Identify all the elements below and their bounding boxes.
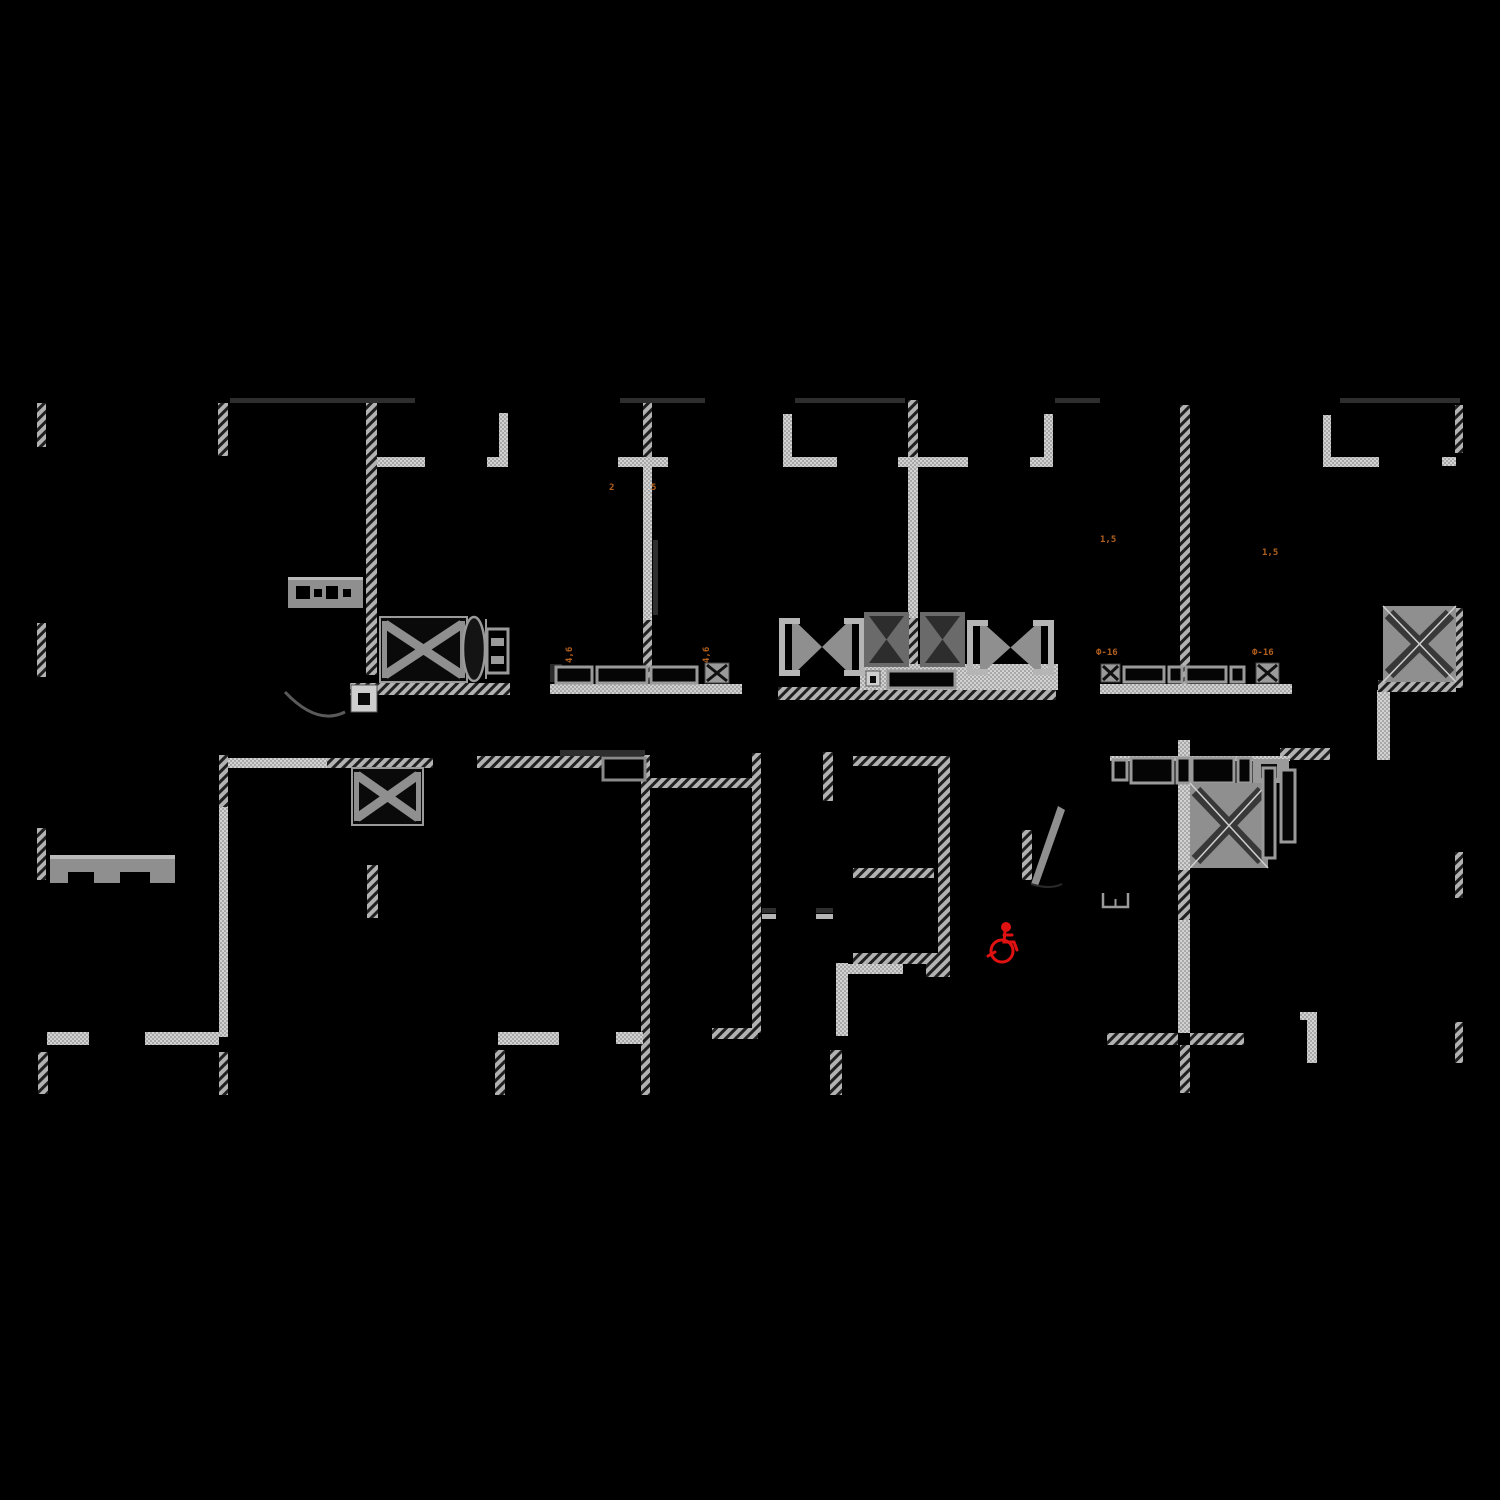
window-symbol — [1238, 758, 1251, 783]
shaft-x-symbol — [416, 772, 421, 821]
wheelchair-accessible-icon — [988, 952, 995, 956]
furniture-symbol — [50, 855, 175, 859]
wall-segment — [1455, 852, 1463, 898]
wall-segment — [487, 457, 508, 467]
door-hinge-box — [870, 676, 876, 683]
wall-segment — [1323, 415, 1331, 462]
wall-segment — [762, 914, 776, 919]
wall-segment — [1100, 684, 1292, 694]
wall-segment — [650, 778, 755, 788]
wall-segment — [38, 1052, 48, 1094]
wall-niche — [603, 758, 645, 780]
wall-segment — [752, 753, 761, 1033]
wall-segment — [908, 400, 918, 457]
wall-segment — [1030, 457, 1053, 467]
wall-segment — [367, 865, 378, 918]
wall-segment — [830, 1050, 842, 1095]
wall-outline-faint — [816, 908, 833, 913]
wall-segment — [783, 414, 792, 462]
wall-segment — [219, 1052, 228, 1095]
wall-segment — [712, 1028, 758, 1039]
wall-segment — [783, 457, 837, 467]
wall-outline-faint — [762, 908, 776, 913]
wall-segment — [853, 953, 939, 964]
column-symbol — [491, 638, 504, 646]
door-leaf-symbol — [463, 617, 485, 681]
wall-segment — [1300, 1012, 1317, 1020]
window-symbol — [1113, 760, 1127, 780]
wall-segment — [926, 964, 946, 977]
window-symbol — [888, 671, 955, 688]
wall-segment — [227, 758, 327, 768]
window-symbol — [597, 667, 647, 683]
wall-segment — [1180, 405, 1190, 685]
window-symbol — [1192, 758, 1234, 783]
wall-segment — [823, 752, 833, 801]
wall-segment — [641, 755, 650, 1045]
wall-segment — [816, 914, 833, 919]
wall-segment — [1178, 870, 1190, 920]
wall-segment — [616, 1032, 643, 1044]
wall-segment — [37, 403, 46, 447]
wall-segment — [219, 807, 228, 1037]
icons-layer — [988, 922, 1017, 962]
wall-segment — [1180, 1045, 1190, 1093]
door-leaf-symbol — [1031, 806, 1065, 886]
wall-segment — [37, 623, 46, 677]
wall-segment — [853, 868, 934, 878]
wall-segment — [641, 1045, 650, 1095]
wall-segment — [1107, 1033, 1178, 1045]
column-symbol — [491, 656, 504, 664]
window-symbol — [556, 667, 592, 683]
vent-bowtie-symbol — [822, 618, 852, 676]
wall-segment — [1455, 405, 1463, 453]
wall-segment — [643, 400, 652, 457]
window-symbol — [1186, 667, 1226, 682]
wall-outline-faint — [560, 750, 645, 756]
kitchen-fixture-symbol — [296, 586, 310, 599]
wall-outline-faint — [230, 398, 415, 403]
wall-segment — [550, 684, 742, 694]
wall-segment — [1455, 1022, 1463, 1063]
window-symbol — [1281, 770, 1295, 842]
wall-segment — [477, 756, 603, 768]
window-symbol — [1131, 758, 1173, 783]
wheelchair-accessible-icon — [988, 922, 1017, 962]
wall-segment — [898, 457, 968, 467]
vent-bowtie-symbol — [792, 618, 822, 676]
furniture-symbol — [120, 872, 150, 883]
wall-segment — [219, 755, 228, 807]
kitchen-fixture-symbol — [314, 589, 322, 597]
door-swing-arc — [1031, 884, 1062, 887]
wall-segment — [1323, 457, 1379, 467]
window-symbol — [1169, 667, 1182, 682]
floor-plan: 254,64,61,51,5Ф-16Ф-16 — [0, 0, 1500, 1500]
shaft-x-symbol — [354, 772, 359, 821]
wall-segment — [908, 457, 918, 618]
wall-segment — [145, 1032, 219, 1045]
wall-segment — [618, 457, 668, 467]
wall-segment — [495, 1050, 505, 1095]
wall-segment — [366, 403, 377, 675]
kitchen-fixture-symbol — [343, 589, 351, 597]
door-swing-arc — [285, 692, 345, 716]
wall-segment — [499, 413, 508, 461]
wall-segment — [1178, 920, 1190, 1033]
floor-plan-canvas — [0, 0, 1500, 1500]
wall-outline-faint — [1340, 398, 1460, 403]
furniture-symbol — [68, 872, 94, 883]
wall-segment — [1307, 1015, 1317, 1063]
wall-segment — [218, 403, 228, 456]
wall-outline-faint — [795, 398, 905, 403]
wall-segment — [377, 457, 425, 467]
wall-segment — [327, 758, 433, 768]
window-symbol — [651, 667, 697, 683]
wall-segment — [853, 756, 941, 766]
column-symbol — [487, 629, 508, 673]
wall-outline-faint — [620, 398, 705, 403]
wall-segment — [845, 964, 903, 974]
wall-segment — [47, 1032, 89, 1045]
wall-segment — [938, 756, 950, 977]
door-hinge-box — [358, 693, 370, 705]
walls-layer — [37, 398, 1463, 1095]
window-symbol — [1263, 768, 1275, 858]
wall-segment — [1455, 608, 1463, 688]
wall-outline-faint — [1055, 398, 1100, 403]
wall-segment — [1044, 414, 1053, 462]
door-jamb — [1022, 830, 1032, 880]
window-symbol — [1177, 758, 1190, 783]
kitchen-fixture-symbol — [288, 577, 363, 580]
wall-segment — [37, 828, 46, 880]
wall-segment — [498, 1032, 559, 1045]
kitchen-fixture-symbol — [326, 586, 338, 599]
wall-segment — [1442, 457, 1456, 466]
wall-outline-faint — [653, 540, 658, 615]
window-symbol — [1124, 667, 1164, 682]
shaft-x-symbol — [382, 621, 387, 678]
wall-segment — [1377, 690, 1390, 760]
wall-segment — [643, 457, 652, 620]
window-symbol — [1231, 667, 1244, 682]
wall-segment — [1190, 1033, 1244, 1045]
